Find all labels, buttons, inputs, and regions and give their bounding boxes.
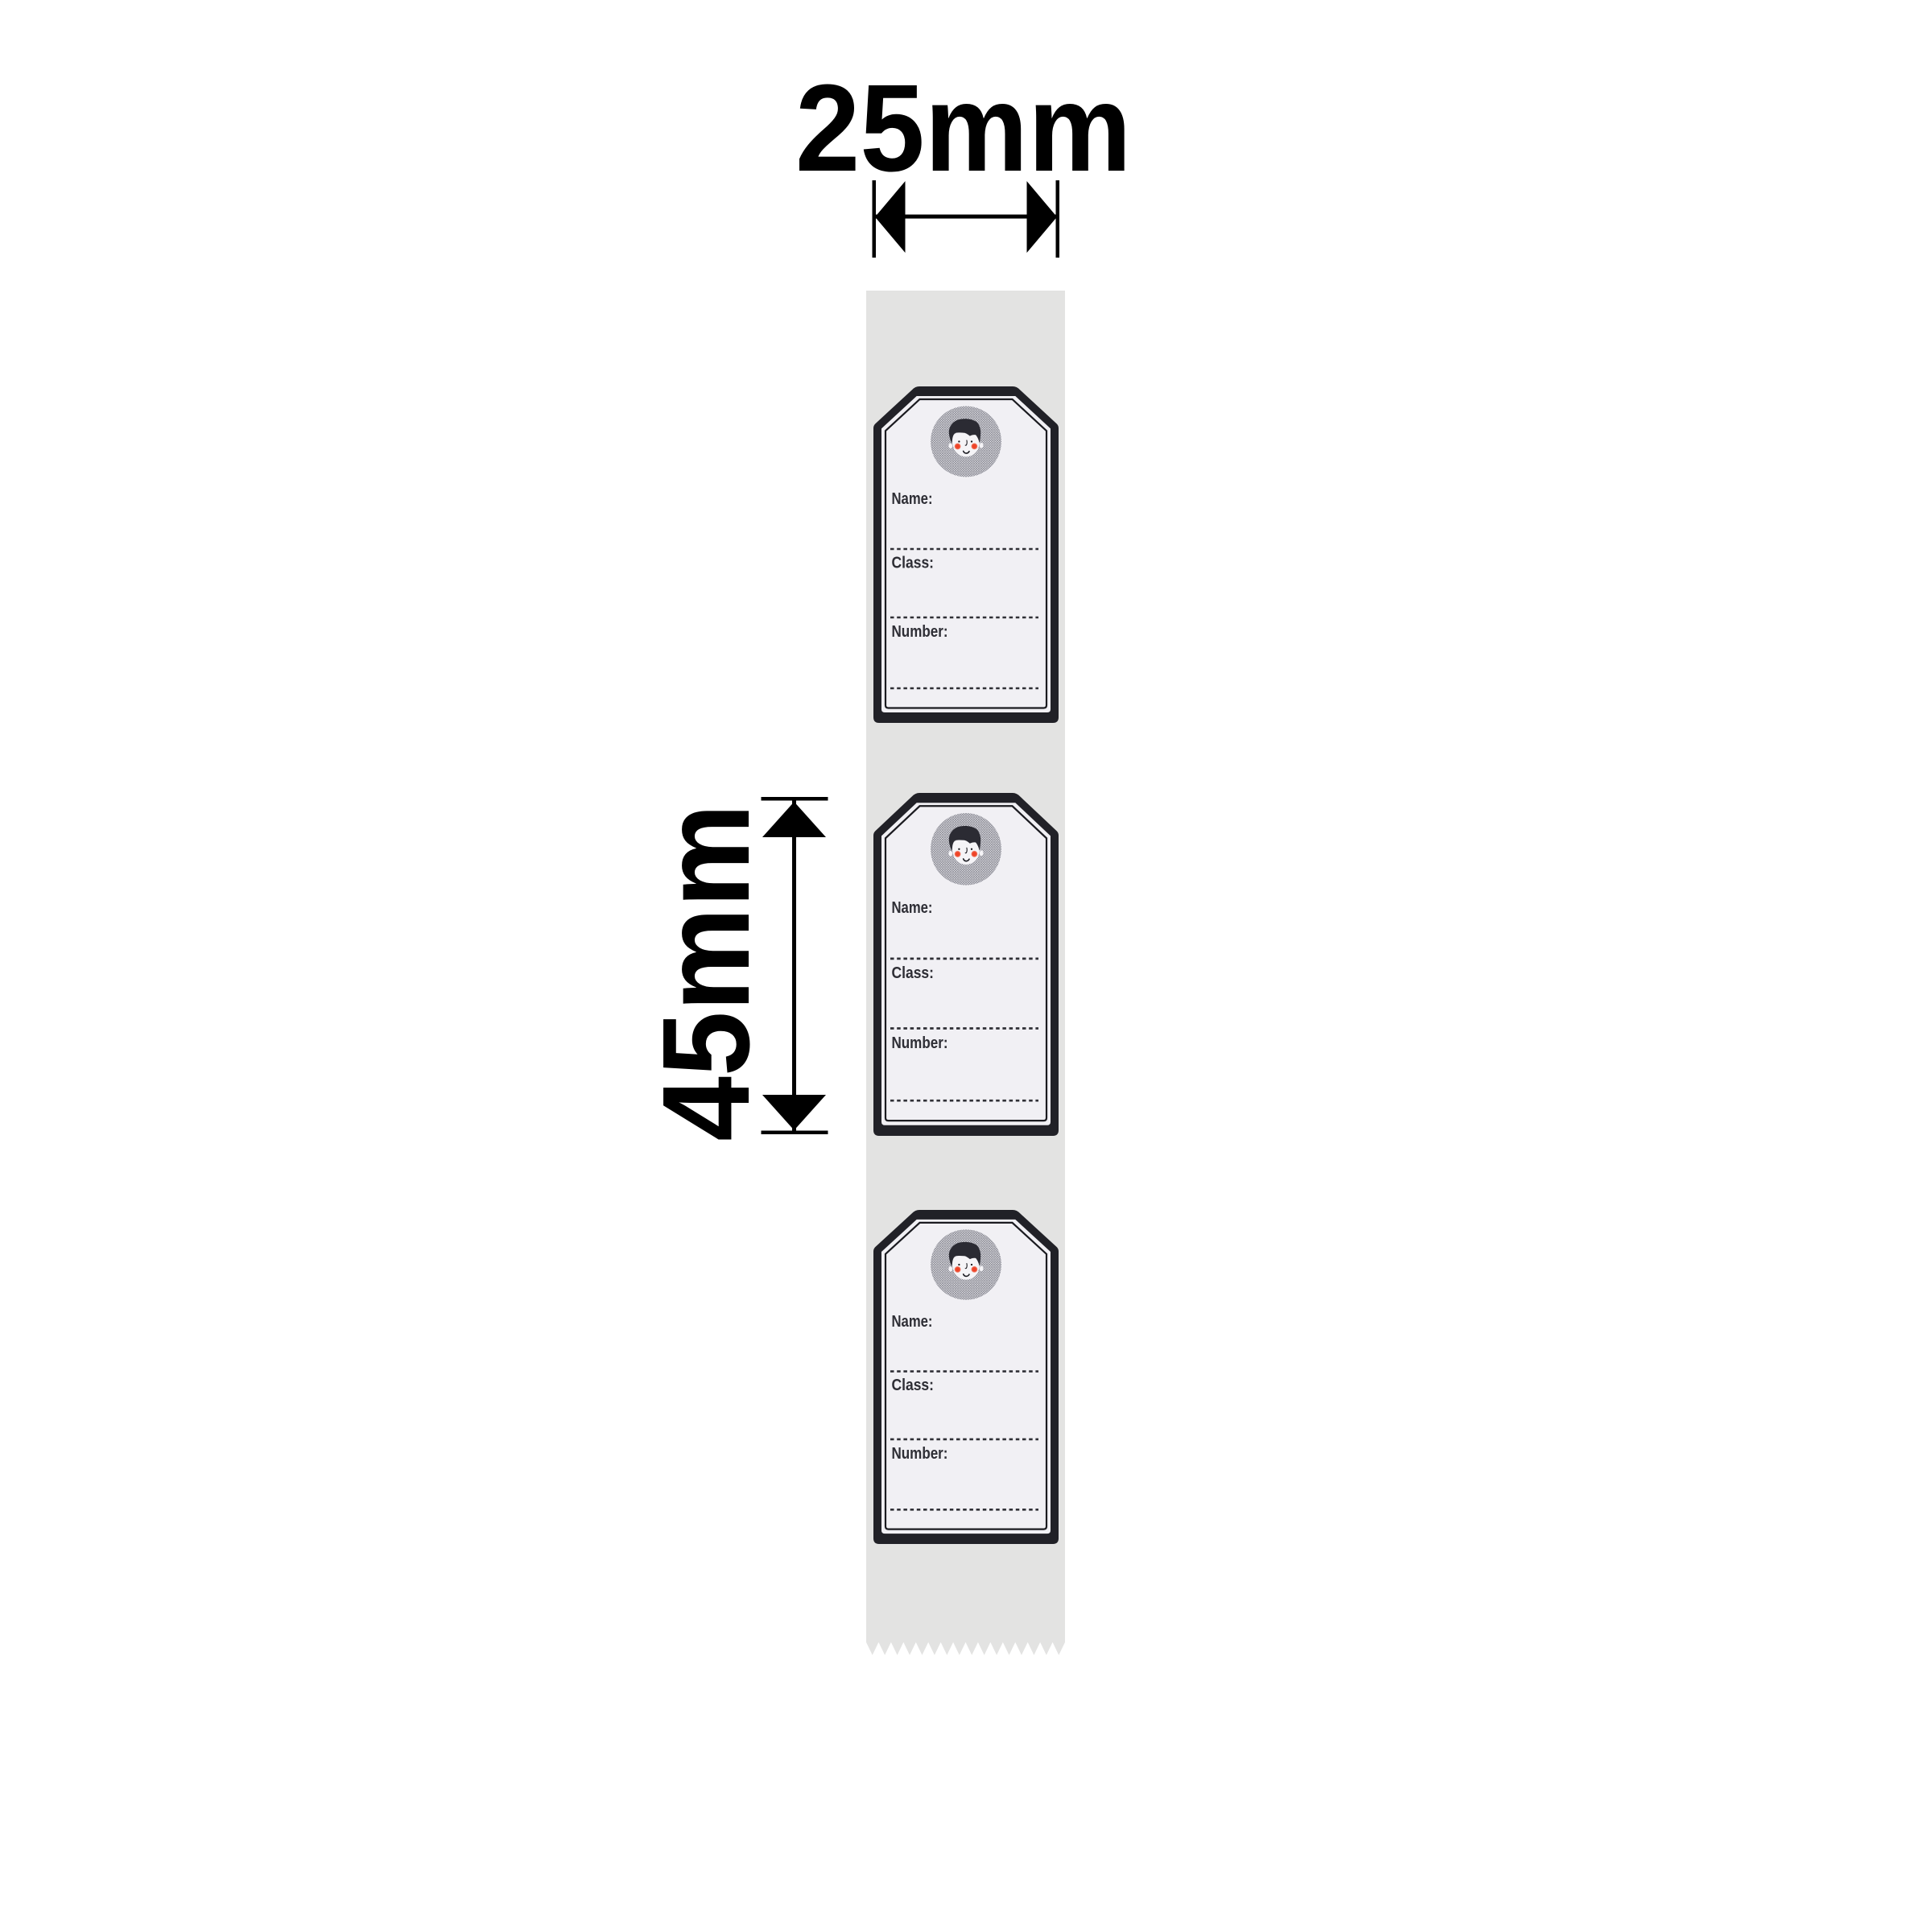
svg-text:Number:: Number: [892,1034,948,1052]
svg-text:Name:: Name: [892,1313,933,1331]
svg-text:Name:: Name: [892,490,933,508]
svg-text:Class:: Class: [892,964,935,982]
svg-text:Class:: Class: [892,1377,935,1394]
svg-text:45mm: 45mm [660,803,775,1141]
svg-text:Class:: Class: [892,555,935,572]
svg-text:Name:: Name: [892,898,933,917]
svg-text:Number:: Number: [892,1445,948,1463]
svg-text:Number:: Number: [892,623,948,641]
